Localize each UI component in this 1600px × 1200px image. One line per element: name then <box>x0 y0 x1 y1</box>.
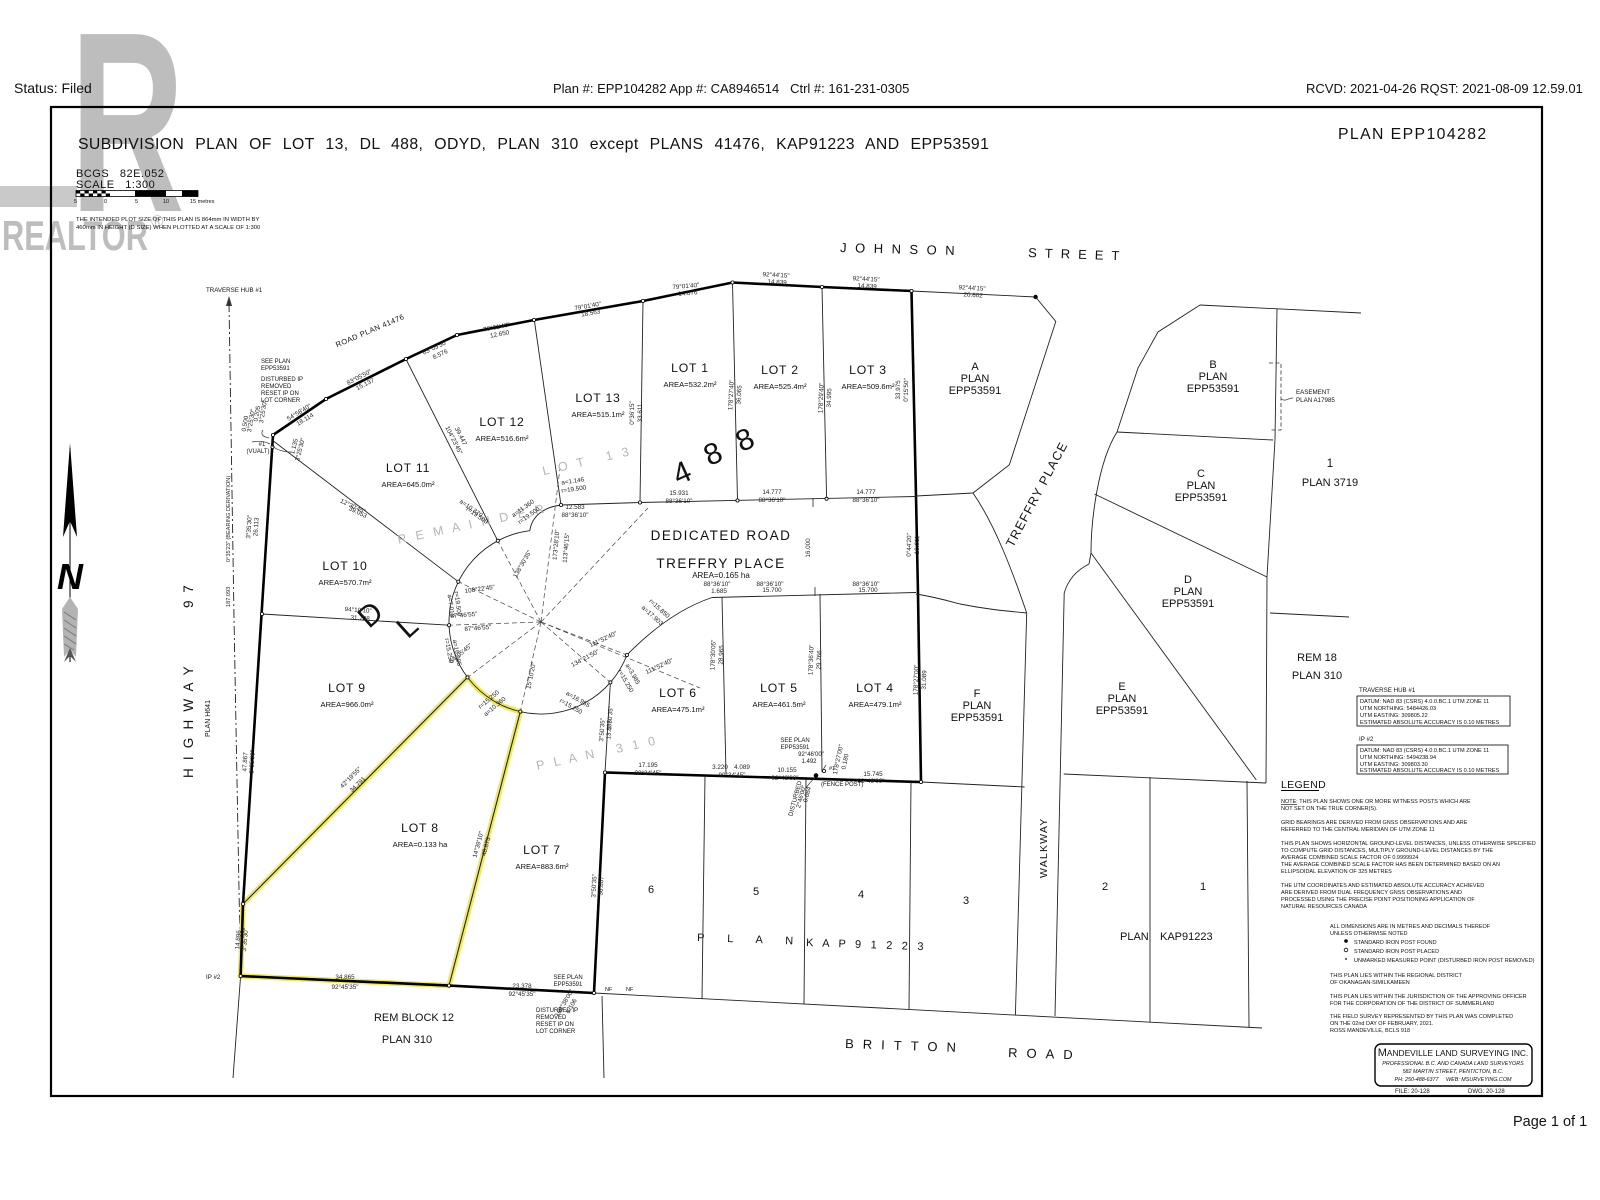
svg-text:92°46'00": 92°46'00" <box>798 752 824 758</box>
svg-text:PROCESSED USING THE PRECISE PO: PROCESSED USING THE PRECISE POINT POSITI… <box>1281 897 1475 903</box>
svg-text:PLAN H641: PLAN H641 <box>205 700 212 737</box>
svg-text:460mm IN HEIGHT (D SIZE) WHEN: 460mm IN HEIGHT (D SIZE) WHEN PLOTTED AT… <box>76 225 261 231</box>
svg-text:0: 0 <box>104 199 107 205</box>
svg-text:B: B <box>1209 359 1216 371</box>
svg-text:PLAN 310: PLAN 310 <box>382 1034 432 1046</box>
svg-text:PLAN: PLAN <box>1108 693 1137 705</box>
svg-text:LOT 1: LOT 1 <box>671 361 709 375</box>
svg-text:N: N <box>57 556 84 597</box>
svg-text:ROAD: ROAD <box>1008 1045 1082 1063</box>
svg-text:AREA=532.2m²: AREA=532.2m² <box>664 380 717 389</box>
svg-text:EASEMENT: EASEMENT <box>1296 389 1330 396</box>
svg-text:LOT 11: LOT 11 <box>386 461 430 475</box>
svg-text:TO COMPUTE GRID DISTANCES, MUL: TO COMPUTE GRID DISTANCES, MULTIPLY GROU… <box>1281 848 1493 854</box>
svg-text:0°35'23" (BEARING DERIVATION): 0°35'23" (BEARING DERIVATION) <box>226 476 232 562</box>
svg-text:92°45'35": 92°45'35" <box>332 983 359 991</box>
svg-text:14.839: 14.839 <box>857 283 877 291</box>
svg-text:29.766: 29.766 <box>816 650 824 670</box>
svg-text:6: 6 <box>648 884 654 896</box>
svg-text:LOT CORNER: LOT CORNER <box>536 1029 576 1035</box>
svg-text:14.777: 14.777 <box>762 489 782 496</box>
svg-text:23.378: 23.378 <box>512 983 532 990</box>
svg-text:REM BLOCK 12: REM BLOCK 12 <box>374 1012 454 1024</box>
svg-text:3.220: 3.220 <box>712 764 728 771</box>
svg-text:12.583: 12.583 <box>565 504 585 511</box>
svg-text:1: 1 <box>1200 881 1206 893</box>
svg-text:LOT 3: LOT 3 <box>849 363 887 377</box>
svg-text:PLAN: PLAN <box>961 373 990 385</box>
svg-text:PLAN: PLAN <box>1187 480 1216 492</box>
svg-text:IP #2: IP #2 <box>1359 736 1374 743</box>
svg-text:RESET IP ON: RESET IP ON <box>261 391 299 397</box>
svg-text:LOT 9: LOT 9 <box>328 681 366 695</box>
svg-text:582 MARTIN STREET, PENTICTO: 582 MARTIN STREET, PENTICTON, B.C. <box>1403 1069 1504 1075</box>
svg-text:TRAVERSE HUB #1: TRAVERSE HUB #1 <box>206 287 263 294</box>
svg-text:ALL DIMENSIONS ARE IN METRES A: ALL DIMENSIONS ARE IN METRES AND DECIMAL… <box>1330 924 1491 930</box>
svg-text:LOT 12: LOT 12 <box>479 415 524 429</box>
svg-text:AREA=0.133 ha: AREA=0.133 ha <box>393 840 448 849</box>
svg-text:STANDARD IRON POST FOUND: STANDARD IRON POST FOUND <box>1354 940 1437 946</box>
svg-text:28.965: 28.965 <box>718 645 726 665</box>
svg-text:AREA=509.6m²: AREA=509.6m² <box>842 382 895 391</box>
svg-text:DISTURBED IP: DISTURBED IP <box>261 377 303 383</box>
svg-text:REM 18: REM 18 <box>1297 652 1337 664</box>
svg-text:15 metres: 15 metres <box>190 199 215 205</box>
svg-text:0°36'15": 0°36'15" <box>628 401 636 424</box>
svg-text:0°44'20": 0°44'20" <box>905 533 913 557</box>
svg-text:(VUALT): (VUALT) <box>247 449 270 455</box>
svg-text:10: 10 <box>163 199 169 205</box>
svg-text:1: 1 <box>1327 458 1333 470</box>
svg-text:EPP53591: EPP53591 <box>951 712 1004 724</box>
svg-text:33.611: 33.611 <box>637 403 644 422</box>
svg-text:REMOVED: REMOVED <box>261 384 292 390</box>
svg-text:NOTE: THIS PLAN SHOWS ONE OR M: NOTE: THIS PLAN SHOWS ONE OR MORE WITNES… <box>1281 799 1471 805</box>
svg-text:PROFESSIONAL B.C. AND CANAD: PROFESSIONAL B.C. AND CANADA LAND SURVEY… <box>1382 1061 1524 1067</box>
svg-text:9 7: 9 7 <box>181 583 196 608</box>
svg-text:2: 2 <box>1102 881 1108 893</box>
svg-text:OF OKANAGAN-SIMILKAMEEN: OF OKANAGAN-SIMILKAMEEN <box>1330 980 1410 986</box>
svg-text:UTM EASTING: 309805.22: UTM EASTING: 309805.22 <box>1360 713 1428 719</box>
svg-text:178°30'05": 178°30'05" <box>708 640 717 671</box>
svg-text:AREA=515.1m²: AREA=515.1m² <box>572 410 625 419</box>
svg-text:THE UTM COORDINATES AND ESTIMA: THE UTM COORDINATES AND ESTIMATED ABSOLU… <box>1281 883 1484 889</box>
svg-text:UTM NORTHING: 5484426.03: UTM NORTHING: 5484426.03 <box>1360 706 1436 712</box>
svg-text:THE AVERAGE COMBINED SCALE FAC: THE AVERAGE COMBINED SCALE FACTOR HAS BE… <box>1281 862 1500 868</box>
svg-text:LOT 5: LOT 5 <box>760 681 798 695</box>
svg-text:15.700: 15.700 <box>858 587 878 594</box>
svg-text:SCALE 1:300: SCALE 1:300 <box>76 179 155 191</box>
svg-text:88°36'10": 88°36'10" <box>759 496 786 504</box>
svg-text:178°27'40": 178°27'40" <box>726 379 736 410</box>
svg-text:MANDEVILLE LAND SURVEYING INC.: MANDEVILLE LAND SURVEYING INC. <box>1378 1047 1529 1059</box>
svg-text:EPP53591: EPP53591 <box>1096 705 1149 717</box>
svg-text:PLAN EPP104282: PLAN EPP104282 <box>1338 126 1488 143</box>
svg-text:31.738: 31.738 <box>350 614 370 622</box>
svg-text:16.000: 16.000 <box>805 538 812 558</box>
svg-text:EPP53591: EPP53591 <box>554 982 583 988</box>
svg-text:SEE PLAN: SEE PLAN <box>553 975 582 981</box>
svg-text:178°36'40": 178°36'40" <box>806 645 815 676</box>
svg-text:178°29'40": 178°29'40" <box>816 383 825 414</box>
svg-text:THE INTENDED PLOT SIZE OF THIS: THE INTENDED PLOT SIZE OF THIS PLAN IS 8… <box>76 217 259 223</box>
svg-text:NOT SET ON THE TRUE CORNER(S).: NOT SET ON THE TRUE CORNER(S). <box>1281 806 1378 812</box>
svg-text:PLAN 3719: PLAN 3719 <box>1302 477 1358 489</box>
svg-text:LOT 6: LOT 6 <box>659 686 697 700</box>
svg-text:AREA=645.0m²: AREA=645.0m² <box>382 480 435 489</box>
svg-text:THE FIELD SURVEY REPRESENTED B: THE FIELD SURVEY REPRESENTED BY THIS PLA… <box>1330 1014 1513 1020</box>
svg-text:ELLIPSOIDAL ELEVATION OF 325 M: ELLIPSOIDAL ELEVATION OF 325 METRES <box>1281 869 1392 875</box>
svg-text:5: 5 <box>135 199 138 205</box>
svg-text:A: A <box>971 361 979 373</box>
svg-text:36.807: 36.807 <box>598 876 606 896</box>
svg-text:34.995: 34.995 <box>826 388 834 408</box>
svg-text:EPP53591: EPP53591 <box>781 745 810 751</box>
svg-text:AREA=525.4m²: AREA=525.4m² <box>754 382 807 391</box>
svg-text:1.685: 1.685 <box>711 588 727 595</box>
svg-text:26.113: 26.113 <box>252 517 260 537</box>
svg-text:ROSS MANDEVILLE, BCLS 918: ROSS MANDEVILLE, BCLS 918 <box>1330 1028 1410 1034</box>
svg-text:EPP53591: EPP53591 <box>1175 492 1228 504</box>
svg-text:1.492: 1.492 <box>801 759 817 765</box>
svg-text:AREA=475.1m²: AREA=475.1m² <box>652 705 705 714</box>
svg-text:C: C <box>1197 468 1205 480</box>
svg-text:PH: 250-488-6377 WEB: MS: PH: 250-488-6377 WEB: MSURVEYING.COM <box>1394 1077 1512 1083</box>
svg-text:THIS PLAN LIES WITHIN THE REGI: THIS PLAN LIES WITHIN THE REGIONAL DISTR… <box>1330 973 1463 979</box>
svg-text:LOT 4: LOT 4 <box>856 681 894 695</box>
svg-text:H I G H W A Y: H I G H W A Y <box>181 664 196 778</box>
svg-text:ARE DERIVED FROM DUAL FREQUENC: ARE DERIVED FROM DUAL FREQUENCY GNSS OBS… <box>1281 890 1462 896</box>
svg-text:4.089: 4.089 <box>734 764 750 771</box>
svg-text:EPP53591: EPP53591 <box>949 385 1002 397</box>
svg-text:EPP53591: EPP53591 <box>1162 598 1215 610</box>
svg-text:AREA=0.165 ha: AREA=0.165 ha <box>692 571 750 580</box>
svg-text:PLAN 310: PLAN 310 <box>1292 670 1342 682</box>
svg-text:178°27'00": 178°27'00" <box>911 665 920 696</box>
svg-text:20.602: 20.602 <box>963 292 983 300</box>
svg-text:REMOVED: REMOVED <box>536 1015 567 1021</box>
svg-text:THIS PLAN SHOWS HORIZONTAL GRO: THIS PLAN SHOWS HORIZONTAL GROUND-LEVEL … <box>1281 841 1536 847</box>
svg-text:Page 1 of 1: Page 1 of 1 <box>1513 1114 1587 1130</box>
svg-text:LOT 7: LOT 7 <box>523 843 561 857</box>
svg-text:STANDARD IRON POST PLACED: STANDARD IRON POST PLACED <box>1354 949 1439 955</box>
svg-text:90°34'45": 90°34'45" <box>635 769 662 777</box>
svg-text:LOT 10: LOT 10 <box>322 559 367 573</box>
svg-text:LOT 8: LOT 8 <box>401 821 439 835</box>
svg-text:RESET IP ON: RESET IP ON <box>536 1022 574 1028</box>
svg-text:ESTIMATED ABSOLUTE ACCURACY IS: ESTIMATED ABSOLUTE ACCURACY IS 0.10 METR… <box>1360 720 1500 726</box>
svg-text:DATUM: NAD 83 (CSRS) 4.0.0.BC.: DATUM: NAD 83 (CSRS) 4.0.0.BC.1 UTM ZONE… <box>1360 748 1489 754</box>
svg-text:UNLESS OTHERWISE NOTED: UNLESS OTHERWISE NOTED <box>1330 931 1408 937</box>
svg-text:34.865: 34.865 <box>335 974 355 981</box>
svg-text:36.065: 36.065 <box>736 385 744 405</box>
svg-text:3°50'35": 3°50'35" <box>605 706 615 730</box>
svg-text:88°36'10": 88°36'10" <box>704 580 731 588</box>
svg-text:RCVD: 2021-04-26 RQST: 2021-08: RCVD: 2021-04-26 RQST: 2021-08-09 12.59.… <box>1306 81 1583 96</box>
svg-text:3: 3 <box>963 895 969 907</box>
svg-text:AREA=570.7m²: AREA=570.7m² <box>319 578 372 587</box>
svg-text:5: 5 <box>753 886 759 898</box>
svg-text:PLAN A17985: PLAN A17985 <box>1296 397 1335 404</box>
svg-text:AREA=461.5m²: AREA=461.5m² <box>753 700 806 709</box>
svg-text:NF: NF <box>626 987 634 993</box>
svg-text:PLAN: PLAN <box>1120 931 1149 943</box>
svg-text:15.931: 15.931 <box>669 490 689 497</box>
svg-text:THIS PLAN LIES WITHIN THE JURI: THIS PLAN LIES WITHIN THE JURISDICTION O… <box>1330 994 1527 1000</box>
svg-text:F: F <box>974 688 981 700</box>
svg-text:AREA=883.6m²: AREA=883.6m² <box>516 862 569 871</box>
svg-text:AREA=479.1m²: AREA=479.1m² <box>849 700 902 709</box>
svg-text:TRAVERSE HUB #1: TRAVERSE HUB #1 <box>1359 687 1416 694</box>
svg-text:EPP53591: EPP53591 <box>1187 383 1240 395</box>
svg-text:AREA=516.6m²: AREA=516.6m² <box>476 434 529 443</box>
svg-text:LEGEND: LEGEND <box>1281 779 1326 791</box>
svg-text:EPP53591: EPP53591 <box>261 366 290 372</box>
svg-text:DWG: 20-128: DWG: 20-128 <box>1468 1089 1505 1095</box>
svg-text:KAP91223: KAP91223 <box>1160 931 1213 943</box>
svg-text:90°34'45": 90°34'45" <box>719 771 746 779</box>
svg-text:4: 4 <box>858 889 864 901</box>
svg-text:WALKWAY: WALKWAY <box>1038 817 1050 878</box>
svg-text:Plan #: EPP104282 App #: CA894: Plan #: EPP104282 App #: CA8946514 Ctrl … <box>553 81 909 96</box>
svg-text:D: D <box>1184 574 1192 586</box>
svg-text:14.839: 14.839 <box>767 279 787 287</box>
svg-text:UTM NORTHING: 5494238.94: UTM NORTHING: 5494238.94 <box>1360 755 1436 761</box>
svg-text:GRID BEARINGS ARE DERIVED FROM: GRID BEARINGS ARE DERIVED FROM GNSS OBSE… <box>1281 820 1468 826</box>
svg-text:DATUM: NAD 83 (CSRS) 4.0.0.BC.: DATUM: NAD 83 (CSRS) 4.0.0.BC.1 UTM ZONE… <box>1360 699 1489 705</box>
svg-text:IP #2: IP #2 <box>206 974 221 981</box>
svg-text:17.195: 17.195 <box>638 762 658 769</box>
svg-text:AVERAGE COMBINED SCALE FACTOR: AVERAGE COMBINED SCALE FACTOR OF 0.99999… <box>1281 855 1418 861</box>
svg-text:88°36'10": 88°36'10" <box>853 496 880 504</box>
svg-text:REFERRED TO THE CENTRAL MERIDI: REFERRED TO THE CENTRAL MERIDIAN OF UTM … <box>1281 827 1435 833</box>
svg-text:DEDICATED ROAD: DEDICATED ROAD <box>651 528 792 543</box>
svg-text:88°36'10": 88°36'10" <box>562 511 589 519</box>
svg-text:#1: #1 <box>259 442 266 448</box>
svg-text:LOT 2: LOT 2 <box>761 363 799 377</box>
svg-text:AREA=966.0m²: AREA=966.0m² <box>321 700 374 709</box>
svg-text:0°15'50": 0°15'50" <box>902 378 910 402</box>
svg-text:FILE: 20-128: FILE: 20-128 <box>1395 1089 1430 1095</box>
svg-text:PLAN: PLAN <box>1174 586 1203 598</box>
svg-text:15.745: 15.745 <box>863 771 883 778</box>
svg-text:187.093: 187.093 <box>226 587 232 607</box>
svg-text:92°46'00": 92°46'00" <box>858 777 885 785</box>
svg-text:E: E <box>1118 681 1125 693</box>
svg-text:31.089: 31.089 <box>921 670 929 690</box>
svg-text:Status: Filed: Status: Filed <box>14 80 92 96</box>
svg-text:88°36'10": 88°36'10" <box>666 497 693 505</box>
svg-text:SUBDIVISION PLAN OF LOT 13, DL: SUBDIVISION PLAN OF LOT 13, DL 488, ODYD… <box>78 136 989 153</box>
svg-text:33.975: 33.975 <box>895 380 902 400</box>
svg-text:92°46'00": 92°46'00" <box>772 774 799 782</box>
svg-text:15.700: 15.700 <box>762 587 782 594</box>
svg-text:LOT 13: LOT 13 <box>575 391 620 405</box>
svg-text:SEE PLAN: SEE PLAN <box>261 359 290 365</box>
svg-text:UNMARKED MEASURED POINT (DISTU: UNMARKED MEASURED POINT (DISTURBED IRON … <box>1354 958 1535 964</box>
svg-text:FOR THE CORPORATION OF THE DIS: FOR THE CORPORATION OF THE DISTRICT OF S… <box>1330 1001 1494 1007</box>
svg-text:3°35'30": 3°35'30" <box>247 750 256 774</box>
svg-text:PLAN: PLAN <box>1199 371 1228 383</box>
svg-text:14.777: 14.777 <box>856 489 876 496</box>
svg-text:SEE PLAN: SEE PLAN <box>780 738 809 744</box>
svg-text:ON THE 02nd DAY OF FEBRUARY, 2: ON THE 02nd DAY OF FEBRUARY, 2021. <box>1330 1021 1434 1027</box>
svg-text:NATURAL RESOURCES CANADA: NATURAL RESOURCES CANADA <box>1281 904 1367 910</box>
svg-text:10.155: 10.155 <box>777 767 797 774</box>
svg-text:PLAN: PLAN <box>963 700 992 712</box>
svg-text:ESTIMATED ABSOLUTE ACCURACY IS: ESTIMATED ABSOLUTE ACCURACY IS 0.10 METR… <box>1360 768 1500 774</box>
svg-text:TREFFRY PLACE: TREFFRY PLACE <box>656 556 785 571</box>
svg-text:16.011: 16.011 <box>914 535 921 554</box>
svg-text:5: 5 <box>74 199 77 205</box>
svg-text:NF: NF <box>605 987 613 993</box>
svg-text:92°45'35": 92°45'35" <box>509 990 536 998</box>
